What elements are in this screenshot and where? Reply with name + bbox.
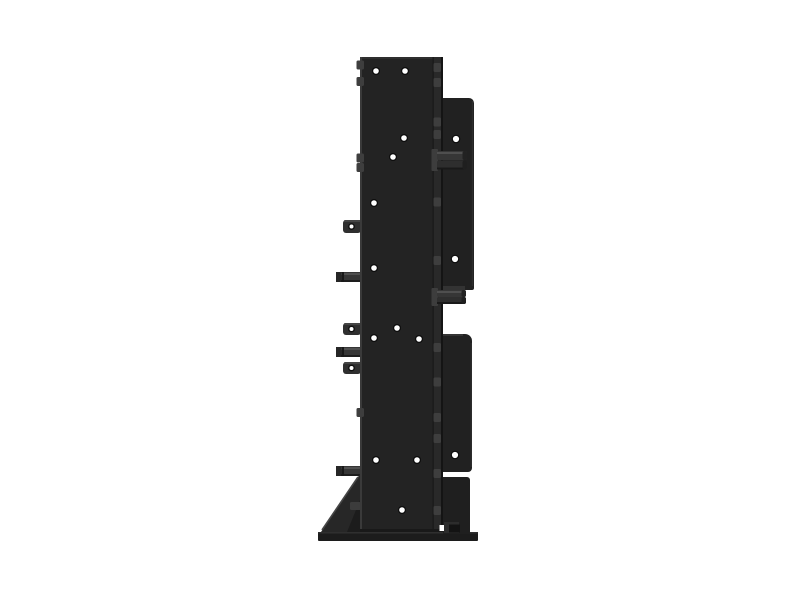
right-pin-pair-1-lower-shade (437, 168, 464, 170)
edge-nub-5 (357, 408, 365, 417)
main-plate-top-edge (360, 57, 443, 59)
left-tab-2-top-edge (344, 323, 361, 325)
bolt-hole-5 (371, 200, 377, 206)
edge-nub-11 (434, 256, 442, 265)
right-pin-pair-2-upper-highlight (437, 291, 463, 293)
left-pin-1-end-cap (336, 272, 341, 282)
bolt-hole-13 (453, 136, 459, 142)
bolt-hole-7 (394, 325, 400, 331)
edge-nub-14 (434, 413, 442, 422)
edge-nub-13 (434, 378, 442, 387)
edge-nub-1 (357, 61, 365, 70)
left-pin-3-ring (342, 466, 345, 476)
product-render-page (0, 0, 800, 600)
left-tab-2-hole (350, 327, 354, 331)
bolt-hole-9 (416, 336, 422, 342)
left-tab-1-top-edge (344, 220, 361, 222)
bolt-hole-6 (371, 265, 377, 271)
right-pin-pair-1-upper-highlight (437, 152, 464, 154)
bolt-hole-8 (371, 335, 377, 341)
right-plate-upper-edge (472, 101, 473, 286)
left-pin-2-ring (342, 347, 345, 357)
bolt-hole-14 (452, 256, 458, 262)
right-pin-pair-1-lower-cap (463, 161, 468, 170)
edge-nub-12 (434, 343, 442, 352)
edge-nub-3 (357, 154, 365, 163)
edge-nub-6 (434, 63, 442, 72)
right-pin-pair-1-upper-cap (463, 151, 468, 160)
left-pin-3-end-cap (336, 466, 341, 476)
edge-nub-16 (434, 469, 442, 478)
left-pin-2-end-cap (336, 347, 341, 357)
left-tab-3-hole (350, 366, 354, 370)
bolt-hole-10 (373, 457, 379, 463)
foot-notch (440, 525, 445, 531)
bolt-hole-1 (373, 68, 379, 74)
bracket-svg (0, 0, 800, 600)
left-tab-1-hole (350, 225, 354, 229)
right-plate-upper-ledge (443, 286, 465, 290)
edge-nub-9 (434, 130, 442, 139)
edge-nub-17 (434, 506, 442, 515)
main-plate-left-edge (360, 57, 362, 532)
left-tab-3-top-edge (344, 362, 361, 364)
bolt-hole-2 (402, 68, 408, 74)
right-pin-pair-2-lower-shade (437, 302, 463, 304)
left-pin-1-ring (342, 272, 345, 282)
right-plate-lower-top-edge (443, 334, 463, 336)
edge-nub-10 (434, 198, 442, 207)
bolt-hole-3 (401, 135, 407, 141)
gusset-nub (350, 502, 361, 510)
edge-nub-4 (357, 163, 365, 172)
edge-nub-2 (357, 77, 365, 86)
bolt-hole-4 (390, 154, 396, 160)
bolt-hole-15 (452, 452, 458, 458)
right-pin-pair-2-upper-cap (462, 290, 467, 297)
bolt-hole-11 (414, 457, 420, 463)
main-plate-bottom-shade (360, 529, 443, 532)
edge-nub-7 (434, 78, 442, 87)
edge-nub-15 (434, 434, 442, 443)
right-plate-lower (443, 334, 472, 472)
edge-nub-8 (434, 118, 442, 127)
right-pin-pair-2-lower-cap (462, 297, 467, 304)
foot-block-dark (449, 525, 460, 533)
bolt-hole-12 (399, 507, 405, 513)
right-plate-lower-edge (471, 343, 472, 467)
